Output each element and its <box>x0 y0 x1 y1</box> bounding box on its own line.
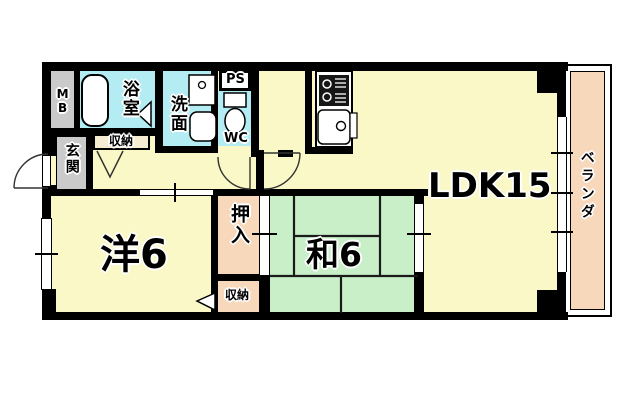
sliding-door-western <box>140 189 213 196</box>
label-genkan: 玄関 <box>64 143 79 175</box>
label-storage-hall: 収納 <box>109 135 133 148</box>
fusuma-oshiire <box>259 196 270 275</box>
wall-japanese-ldk-lower <box>414 272 424 313</box>
wall-under-bath <box>42 128 158 136</box>
window-veranda <box>557 117 567 272</box>
wall-kitchen <box>305 66 312 154</box>
pillar-top-right <box>537 71 566 93</box>
wall-washroom-bottom <box>155 146 218 153</box>
wall-mb-bath <box>74 71 80 128</box>
label-bath: 浴室 <box>119 80 137 118</box>
floorplan: LDK15 洋6 和6 押入 収納 収納 玄関 浴室 洗面 WC PS MB ベ… <box>0 0 640 414</box>
label-mb: MB <box>56 87 69 115</box>
wall-bottom <box>42 312 568 320</box>
wall-hall-bottom-left <box>42 189 140 196</box>
wall-kitchen-stub <box>305 147 353 154</box>
wall-hall-bottom-right <box>213 189 428 196</box>
label-wc: WC <box>224 132 248 146</box>
label-ldk: LDK15 <box>428 169 552 205</box>
label-washroom: 洗面 <box>167 95 185 133</box>
label-japanese: 和6 <box>306 238 362 273</box>
room-bath <box>80 71 155 128</box>
window-western-left <box>41 218 52 290</box>
wall-stub-ldk-door <box>278 150 293 157</box>
wall-washroom-ps <box>211 62 218 150</box>
pillar-bottom-right <box>537 290 566 312</box>
pillar-bottom-left <box>42 289 56 312</box>
wall-bath-washroom <box>155 62 163 150</box>
label-ps: PS <box>226 73 245 87</box>
wall-oshiire-left <box>211 189 218 313</box>
label-oshiire: 押入 <box>228 204 248 246</box>
fusuma-japanese-ldk <box>414 204 424 272</box>
label-veranda: ベランダ <box>579 150 594 222</box>
label-storage-lower: 収納 <box>225 289 249 302</box>
wall-wc-right <box>251 62 259 157</box>
entry-doorway <box>42 156 51 186</box>
wall-genkan-right <box>87 133 93 191</box>
wall-entry-jamb-top <box>48 133 56 156</box>
wall-entry-jamb-bottom <box>48 185 56 195</box>
wall-storage-japanese <box>259 274 270 313</box>
label-western: 洋6 <box>100 234 168 276</box>
